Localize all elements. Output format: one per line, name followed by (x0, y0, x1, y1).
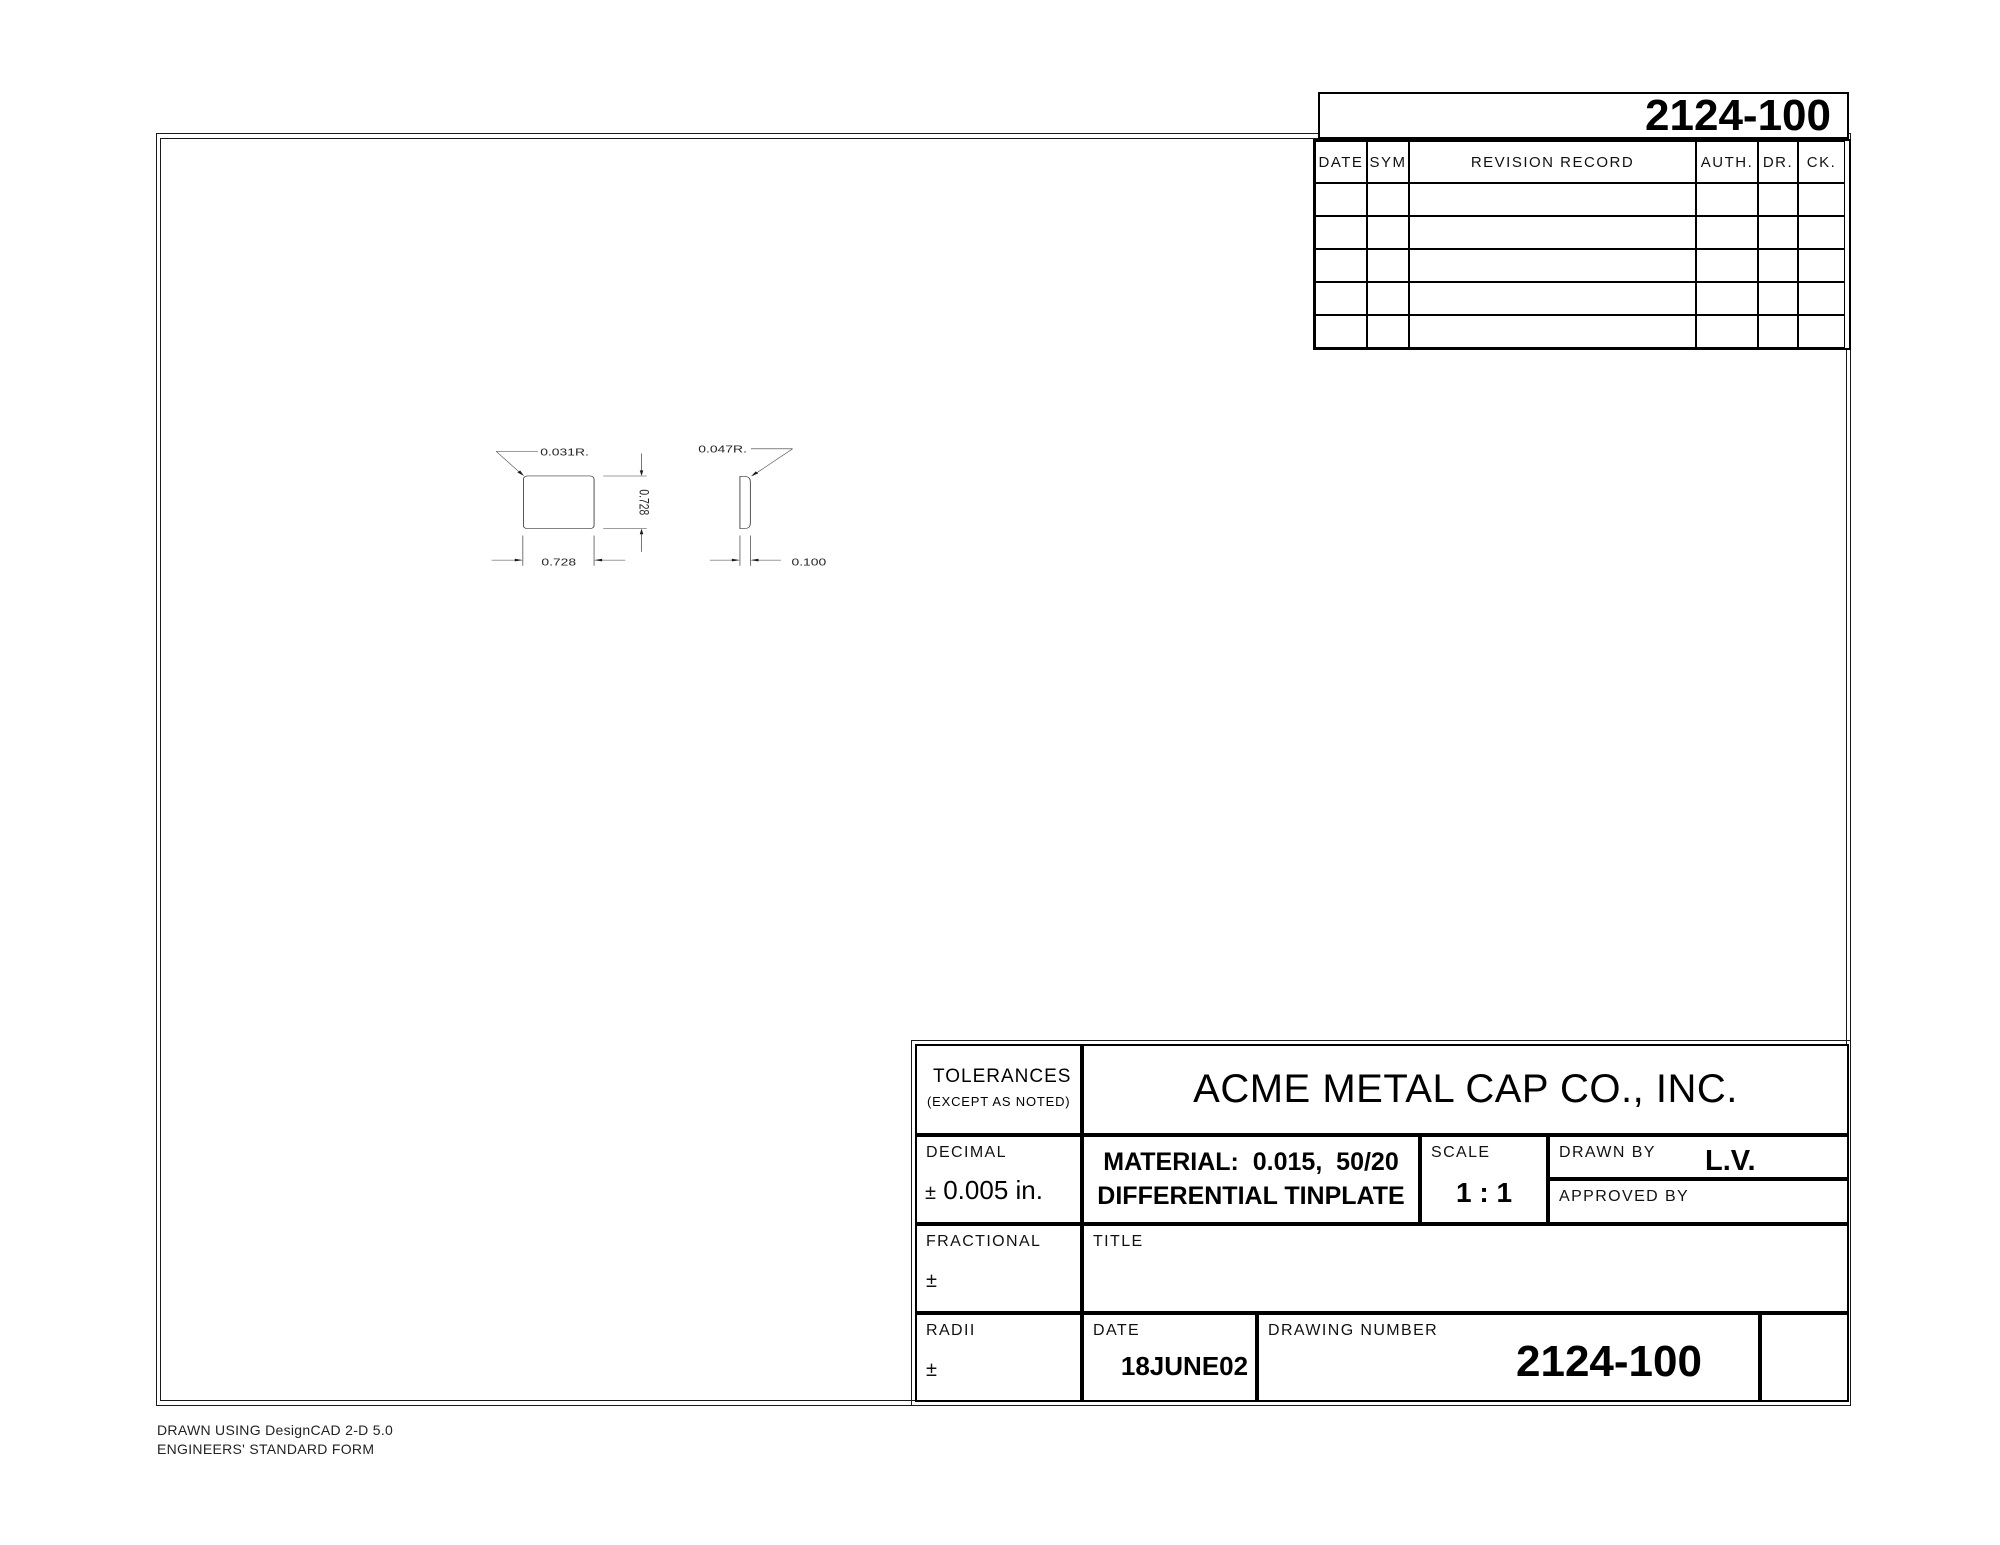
side-view-outline (740, 476, 750, 528)
revision-col-dr: DR. (1758, 141, 1798, 183)
part-views-drawing: 0.031R. 0.047R. 0.728 0.728 0.100 (480, 435, 1140, 765)
revision-cell (1696, 282, 1758, 315)
plus-minus-symbol: ± (926, 1270, 937, 1293)
side-radius-leader (751, 449, 793, 476)
revision-cell (1409, 183, 1696, 216)
revision-cell (1409, 249, 1696, 282)
revision-cell (1367, 282, 1409, 315)
revision-cell (1758, 282, 1798, 315)
revision-cell (1315, 282, 1367, 315)
revision-cell (1367, 183, 1409, 216)
decimal-value-line: ± 0.005 in. (925, 1175, 1043, 1206)
scale-value: 1 : 1 (1422, 1177, 1546, 1209)
revision-cell (1315, 315, 1367, 348)
drawing-number-value: 2124-100 (1459, 1337, 1759, 1387)
revision-cell (1696, 216, 1758, 249)
approved-by-cell: APPROVED BY (1548, 1179, 1849, 1224)
radii-label: RADII (926, 1322, 976, 1340)
revision-cell (1315, 183, 1367, 216)
side-radius-arrowhead-icon (751, 471, 758, 476)
revision-col-record: REVISION RECORD (1409, 141, 1696, 183)
sheet-footer: DRAWN USING DesignCAD 2-D 5.0 ENGINEERS'… (157, 1421, 393, 1459)
title-cell: TITLE (1082, 1224, 1849, 1313)
footer-line1: DRAWN USING DesignCAD 2-D 5.0 (157, 1421, 393, 1440)
front-height-arrow-up-icon (640, 529, 643, 535)
revision-cell (1367, 249, 1409, 282)
company-cell: ACME METAL CAP CO., INC. (1082, 1044, 1849, 1135)
front-height-dim-text: 0.728 (636, 489, 652, 515)
side-thickness-arrow-right-icon (732, 559, 740, 562)
revision-cell (1798, 249, 1845, 282)
drawing-number-cell: DRAWING NUMBER 2124-100 (1257, 1313, 1760, 1402)
revision-cell (1758, 315, 1798, 348)
front-width-dim-text: 0.728 (541, 556, 576, 568)
title-block-blank-cell (1760, 1313, 1849, 1402)
tolerances-note: (EXCEPT AS NOTED) (927, 1094, 1070, 1109)
revision-cell (1315, 249, 1367, 282)
revision-cell (1409, 315, 1696, 348)
revision-cell (1367, 216, 1409, 249)
revision-cell (1409, 282, 1696, 315)
revision-cell (1315, 216, 1367, 249)
revision-col-ck: CK. (1798, 141, 1845, 183)
tolerances-cell: TOLERANCES (EXCEPT AS NOTED) (915, 1044, 1082, 1135)
drawing-number-label: DRAWING NUMBER (1268, 1322, 1438, 1340)
front-width-arrow-right-icon (515, 559, 523, 562)
date-label: DATE (1093, 1322, 1140, 1340)
revision-cell (1696, 249, 1758, 282)
fractional-tolerance-cell: FRACTIONAL ± (915, 1224, 1082, 1313)
scale-label: SCALE (1431, 1144, 1490, 1162)
approved-by-label: APPROVED BY (1559, 1188, 1689, 1206)
sheet-number-band: 2124-100 (1318, 92, 1849, 139)
decimal-value: 0.005 in. (943, 1175, 1043, 1205)
revision-cell (1758, 216, 1798, 249)
revision-cell (1367, 315, 1409, 348)
revision-cell (1798, 183, 1845, 216)
side-thickness-arrow-left-icon (750, 559, 758, 562)
side-radius-label: 0.047R. (698, 443, 747, 455)
drawn-by-label: DRAWN BY (1559, 1144, 1656, 1162)
tolerances-label: TOLERANCES (933, 1066, 1071, 1088)
front-view-outline (523, 476, 594, 529)
title-label: TITLE (1093, 1233, 1144, 1251)
engineering-drawing-page: { "revision_block": { "sheet_number": "2… (0, 0, 2000, 1545)
revision-cell (1758, 249, 1798, 282)
revision-record-table: DATE SYM REVISION RECORD AUTH. DR. CK. (1313, 139, 1851, 350)
material-line1: MATERIAL: 0.015, 50/20 (1103, 1146, 1398, 1180)
scale-cell: SCALE 1 : 1 (1420, 1135, 1548, 1224)
material-line2: DIFFERENTIAL TINPLATE (1097, 1180, 1404, 1214)
decimal-tolerance-cell: DECIMAL ± 0.005 in. (915, 1135, 1082, 1224)
material-cell: MATERIAL: 0.015, 50/20 DIFFERENTIAL TINP… (1082, 1135, 1420, 1224)
drawn-by-cell: DRAWN BY L.V. (1548, 1135, 1849, 1179)
sheet-number: 2124-100 (1645, 91, 1831, 141)
revision-col-auth: AUTH. (1696, 141, 1758, 183)
front-width-arrow-left-icon (594, 559, 602, 562)
footer-line2: ENGINEERS' STANDARD FORM (157, 1440, 393, 1459)
revision-cell (1798, 315, 1845, 348)
front-radius-label: 0.031R. (540, 446, 589, 458)
side-thickness-dim-text: 0.100 (791, 556, 826, 568)
date-cell: DATE 18JUNE02 (1082, 1313, 1257, 1402)
side-thickness-dim-lines (710, 536, 781, 566)
plus-minus-symbol: ± (926, 1359, 937, 1382)
revision-col-sym: SYM (1367, 141, 1409, 183)
revision-cell (1696, 315, 1758, 348)
revision-col-date: DATE (1315, 141, 1367, 183)
company-name: ACME METAL CAP CO., INC. (1193, 1067, 1738, 1112)
front-height-arrow-down-icon (640, 470, 643, 476)
fractional-label: FRACTIONAL (926, 1233, 1041, 1251)
revision-cell (1798, 216, 1845, 249)
radii-tolerance-cell: RADII ± (915, 1313, 1082, 1402)
front-radius-leader (496, 451, 538, 474)
revision-cell (1409, 216, 1696, 249)
revision-cell (1758, 183, 1798, 216)
plus-minus-symbol: ± (925, 1182, 936, 1204)
decimal-label: DECIMAL (926, 1144, 1007, 1162)
revision-cell (1696, 183, 1758, 216)
revision-cell (1798, 282, 1845, 315)
date-value: 18JUNE02 (1084, 1351, 1255, 1382)
drawn-by-value: L.V. (1705, 1145, 1756, 1178)
